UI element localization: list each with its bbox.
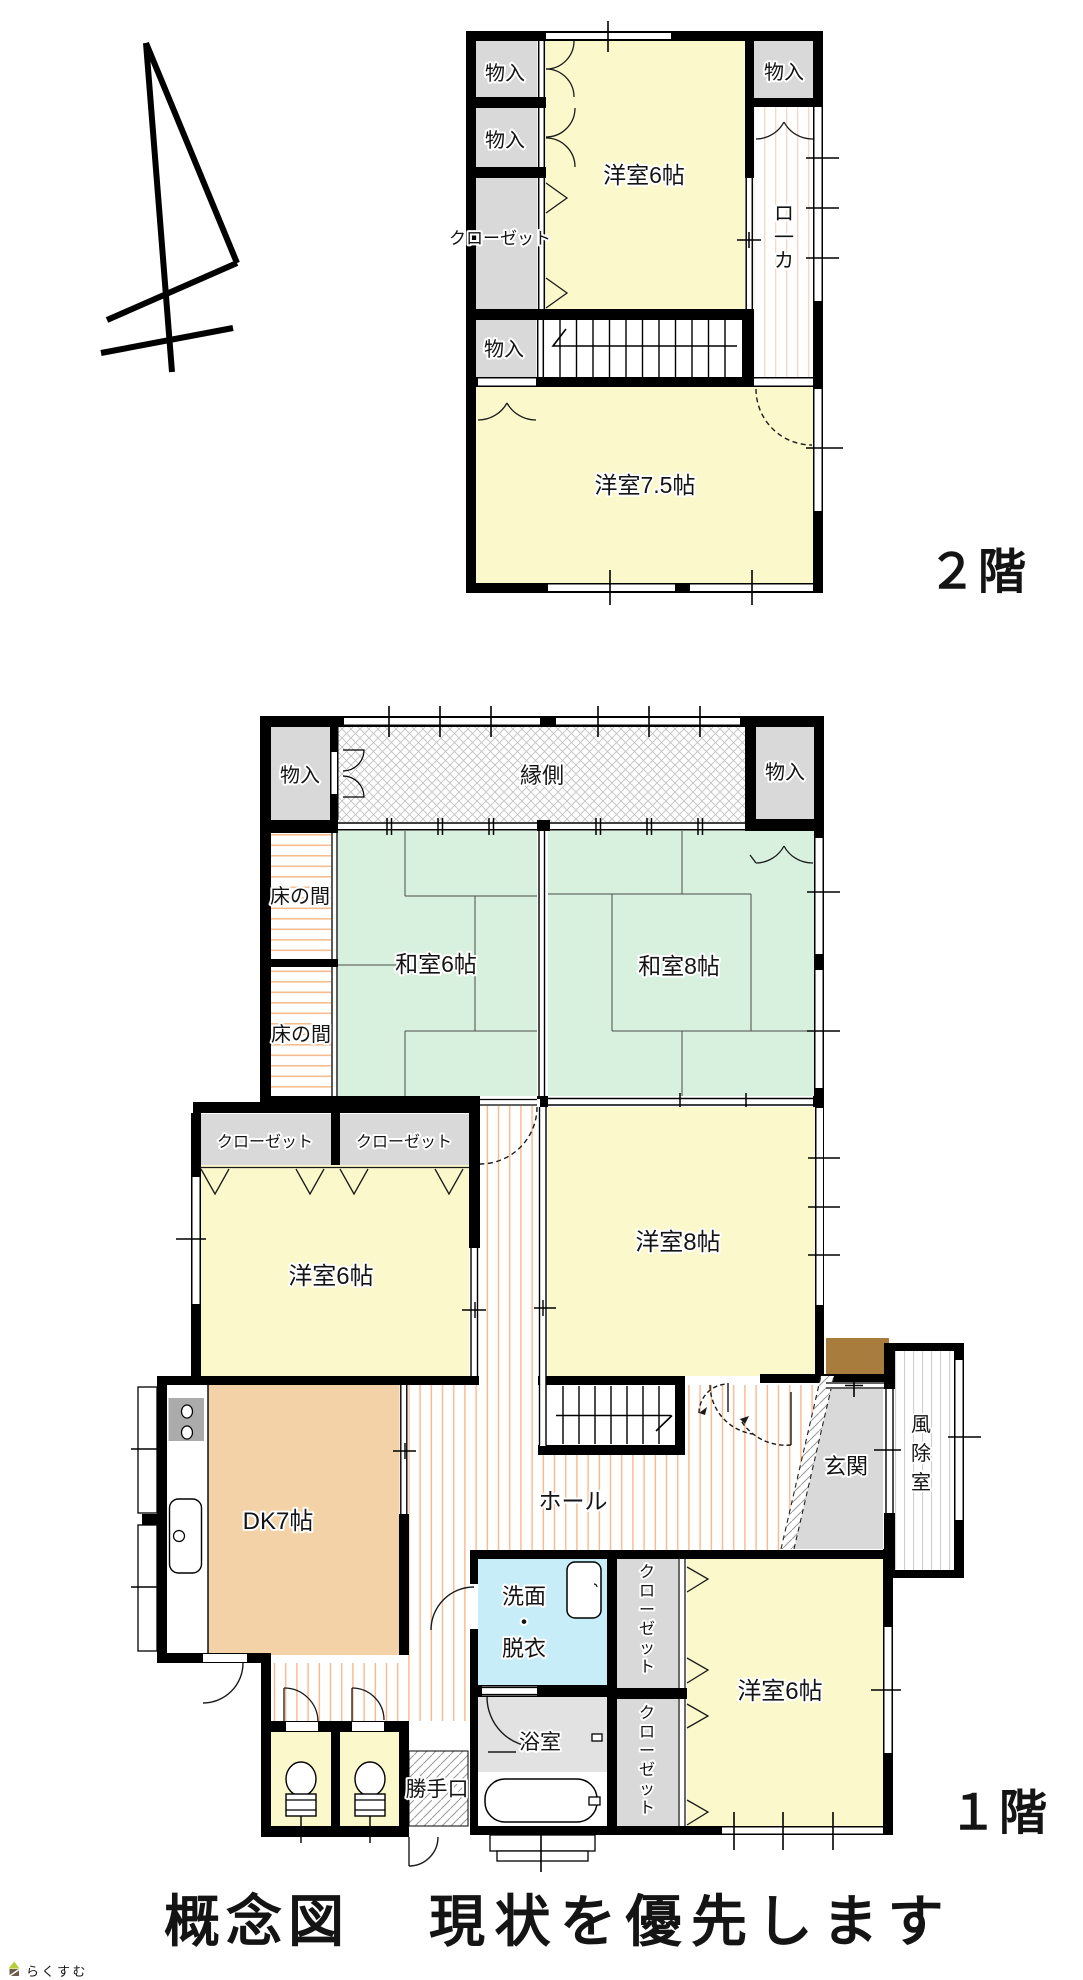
svg-text:クローゼット: クローゼット (356, 1133, 452, 1151)
svg-text:室: 室 (911, 1471, 931, 1494)
svg-text:物入: 物入 (765, 761, 805, 784)
svg-text:ー: ー (639, 1743, 655, 1760)
svg-text:・: ・ (513, 1610, 535, 1635)
svg-text:クローゼット: クローゼット (449, 229, 551, 248)
svg-text:ロ: ロ (639, 1724, 655, 1741)
svg-text:脱衣: 脱衣 (502, 1636, 546, 1661)
svg-text:物入: 物入 (485, 62, 525, 85)
svg-text:ー: ー (639, 1602, 655, 1619)
svg-text:DK7帖: DK7帖 (243, 1508, 314, 1535)
svg-text:勝手口: 勝手口 (406, 1778, 469, 1801)
svg-text:クローゼット: クローゼット (217, 1133, 313, 1151)
svg-text:ク: ク (639, 1563, 655, 1581)
svg-text:ホール: ホール (539, 1488, 608, 1514)
svg-text:一: 一 (774, 227, 794, 249)
svg-text:概念図: 概念図 (164, 1890, 350, 1953)
svg-text:現状を優先します: 現状を優先します (429, 1890, 953, 1953)
svg-text:床の間: 床の間 (270, 885, 330, 908)
svg-text:ト: ト (639, 1659, 655, 1676)
svg-text:和室8帖: 和室8帖 (638, 953, 720, 979)
svg-text:縁側: 縁側 (520, 763, 564, 788)
svg-text:ロ: ロ (774, 203, 794, 225)
svg-text:物入: 物入 (485, 129, 525, 152)
svg-text:物入: 物入 (484, 338, 524, 361)
svg-text:物入: 物入 (280, 764, 320, 787)
svg-text:ゼ: ゼ (639, 1761, 655, 1779)
svg-text:らくすむ: らくすむ (26, 1964, 88, 1979)
svg-text:和室6帖: 和室6帖 (395, 951, 477, 977)
svg-text:物入: 物入 (764, 61, 804, 84)
svg-text:洋室6帖: 洋室6帖 (737, 1678, 822, 1705)
svg-text:ク: ク (639, 1704, 655, 1722)
svg-text:床の間: 床の間 (271, 1023, 331, 1046)
svg-text:ロ: ロ (639, 1583, 655, 1600)
svg-text:カ: カ (774, 250, 794, 272)
svg-text:洋室7.5帖: 洋室7.5帖 (595, 472, 696, 498)
svg-text:ト: ト (639, 1800, 655, 1817)
svg-text:除: 除 (911, 1442, 931, 1465)
svg-text:２階: ２階 (928, 546, 1028, 599)
svg-text:洋室6帖: 洋室6帖 (288, 1263, 373, 1290)
svg-text:浴室: 浴室 (519, 1731, 561, 1754)
svg-text:風: 風 (911, 1414, 931, 1436)
svg-text:ッ: ッ (639, 1781, 655, 1798)
svg-text:ッ: ッ (639, 1640, 655, 1657)
svg-text:ゼ: ゼ (639, 1620, 655, 1638)
svg-text:玄関: 玄関 (824, 1454, 868, 1479)
svg-text:洋室6帖: 洋室6帖 (603, 162, 685, 188)
svg-text:洗面: 洗面 (502, 1584, 546, 1609)
svg-text:洋室8帖: 洋室8帖 (635, 1229, 720, 1256)
svg-text:１階: １階 (949, 1787, 1049, 1840)
